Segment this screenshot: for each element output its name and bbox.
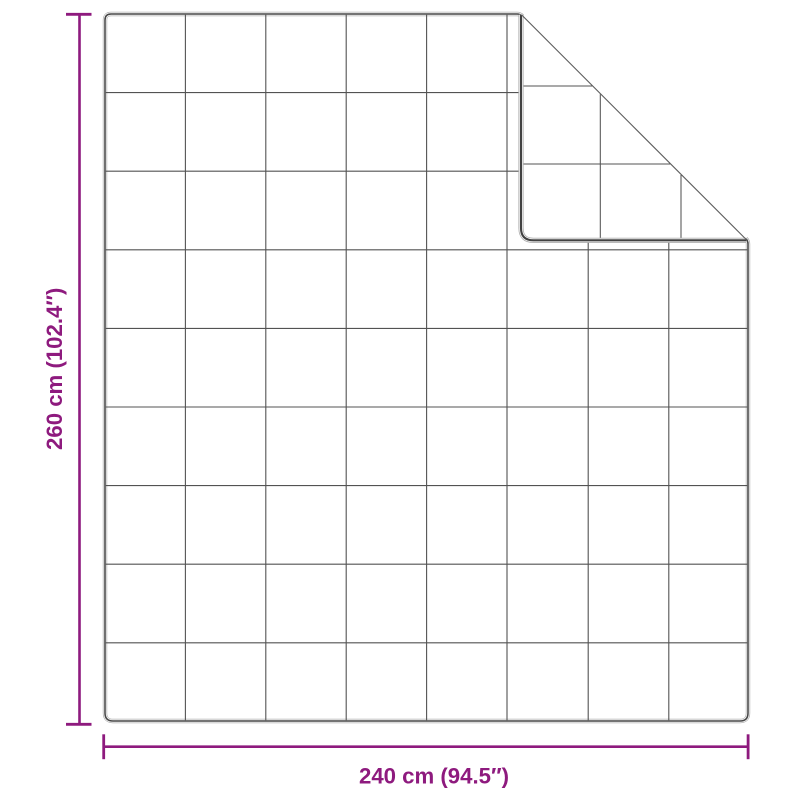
svg-text:260 cm (102.4″): 260 cm (102.4″) [42,288,67,450]
svg-text:240 cm (94.5″): 240 cm (94.5″) [359,763,509,788]
